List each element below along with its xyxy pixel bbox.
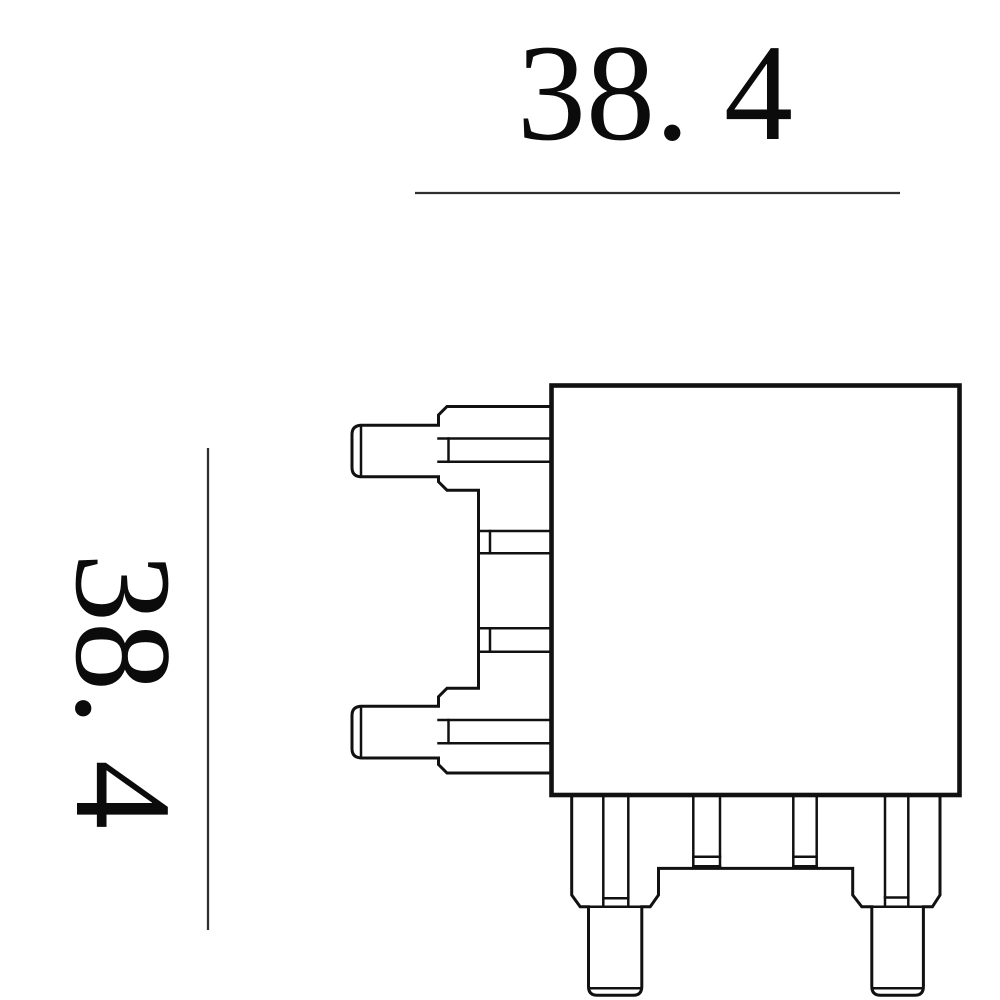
- technical-drawing-page: 38. 4 38. 4: [0, 0, 1000, 1000]
- body-square: [552, 386, 960, 796]
- drawing-canvas: [0, 0, 1000, 1000]
- bottom-legs-group: [572, 794, 940, 995]
- left-prongs-group: [352, 407, 553, 774]
- left-dimension-label: 38. 4: [54, 553, 192, 829]
- top-dimension-label: 38. 4: [517, 24, 793, 162]
